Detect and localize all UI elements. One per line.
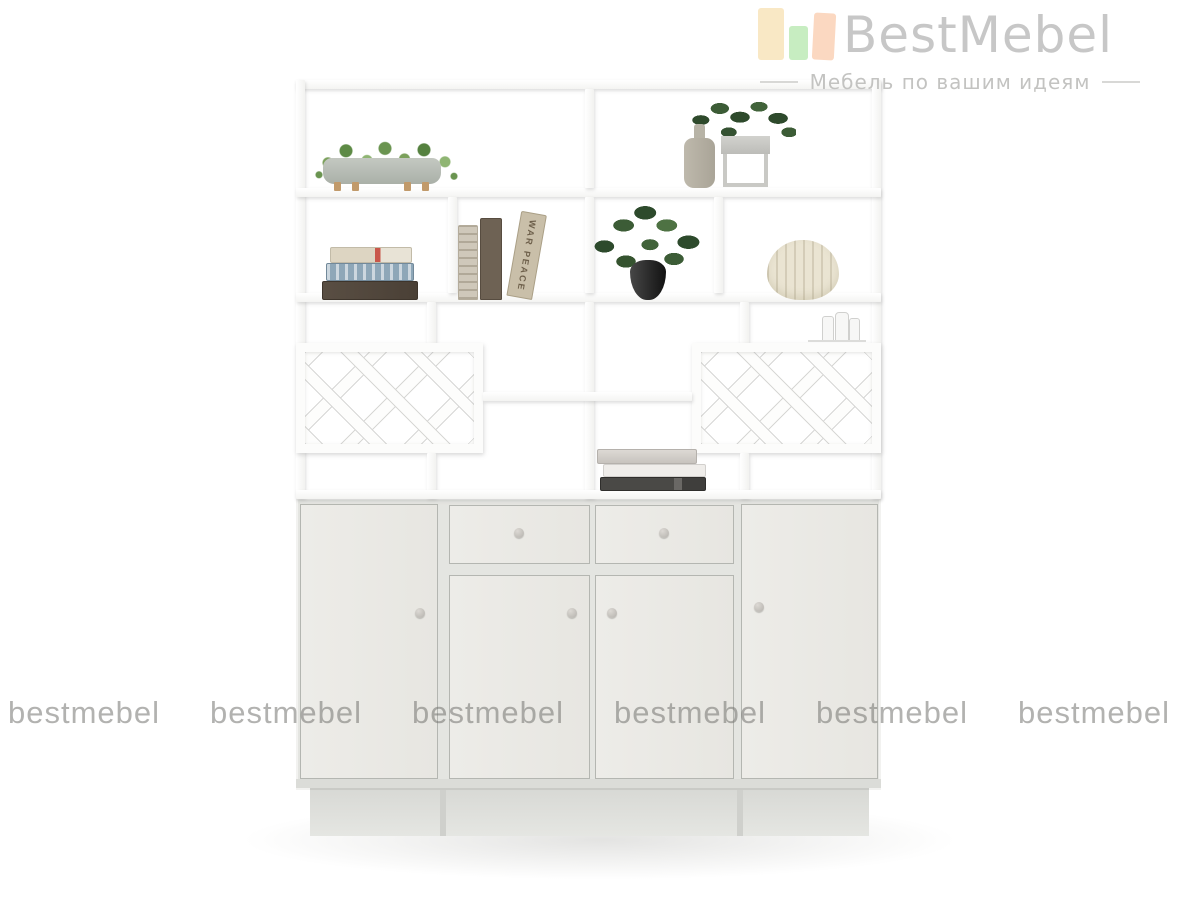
planter-leg xyxy=(422,182,429,191)
watermark: bestmebel xyxy=(8,695,160,731)
book-horizontal xyxy=(603,464,706,477)
book-spine-text: WAR PEACE xyxy=(515,219,537,292)
logo-row: BestMebel xyxy=(740,0,1160,68)
tagline-text: Мебель по вашим идеям xyxy=(810,70,1091,94)
cabinet-door-center-left xyxy=(449,575,590,779)
tagline-dash-right xyxy=(1102,81,1140,83)
book-vertical xyxy=(458,225,478,300)
cabinet-door-center-right xyxy=(595,575,734,779)
logo-bars-icon xyxy=(812,12,836,60)
drawer-knob xyxy=(514,528,524,538)
cabinet-door-left xyxy=(300,504,438,779)
planter-leg xyxy=(404,182,411,191)
cabinet-plinth xyxy=(310,788,869,836)
cabinet-door-right xyxy=(741,504,878,779)
book-vertical xyxy=(480,218,502,300)
brand-tagline: Мебель по вашим идеям xyxy=(740,70,1160,94)
watermark: bestmebel xyxy=(816,695,968,731)
drawer-knob xyxy=(659,528,669,538)
planter-leg xyxy=(352,182,359,191)
glass-miniature xyxy=(822,316,834,342)
logo-bars-icon xyxy=(789,26,808,60)
wine-rack-right xyxy=(692,343,881,453)
middle-connector-shelf xyxy=(483,392,692,401)
book-horizontal xyxy=(330,247,412,263)
door-knob xyxy=(754,602,764,612)
miniature-tray xyxy=(808,340,866,342)
divider-row3-a xyxy=(427,302,436,343)
book-leaning: WAR PEACE xyxy=(506,211,547,300)
tagline-dash-left xyxy=(760,81,798,83)
wine-rack-left xyxy=(296,343,483,453)
shelf-row1 xyxy=(296,188,881,197)
brand-logo: BestMebel Мебель по вашим идеям xyxy=(740,0,1160,94)
book-horizontal xyxy=(322,281,418,300)
cabinet-countertop xyxy=(296,490,881,499)
door-knob xyxy=(415,608,425,618)
door-knob xyxy=(607,608,617,618)
product-photo: BestMebel Мебель по вашим идеям bestmebe… xyxy=(0,0,1200,900)
plant-stand-legs xyxy=(723,154,768,187)
plinth-gap xyxy=(737,790,743,836)
book-horizontal xyxy=(326,263,414,281)
cabinet-bottom-rail xyxy=(296,779,881,788)
bottle-vase xyxy=(684,138,715,188)
divider-row1 xyxy=(585,89,594,188)
watermark: bestmebel xyxy=(210,695,362,731)
planter-leg xyxy=(334,182,341,191)
plant-stand-box xyxy=(721,136,770,154)
book-horizontal xyxy=(597,449,697,464)
concrete-trough-planter xyxy=(323,158,441,184)
door-knob xyxy=(567,608,577,618)
glass-miniature xyxy=(835,312,849,342)
divider-row2-a xyxy=(448,197,457,293)
plinth-gap xyxy=(440,790,446,836)
watermark: bestmebel xyxy=(412,695,564,731)
brand-name: BestMebel xyxy=(843,6,1113,64)
logo-bars-icon xyxy=(758,8,784,60)
book-horizontal xyxy=(600,477,706,491)
ribbed-cream-vase xyxy=(767,240,839,300)
glass-miniature xyxy=(849,318,860,342)
watermark: bestmebel xyxy=(614,695,766,731)
watermark: bestmebel xyxy=(1018,695,1170,731)
divider-row2-c xyxy=(714,197,723,293)
divider-row3-b xyxy=(740,302,749,343)
